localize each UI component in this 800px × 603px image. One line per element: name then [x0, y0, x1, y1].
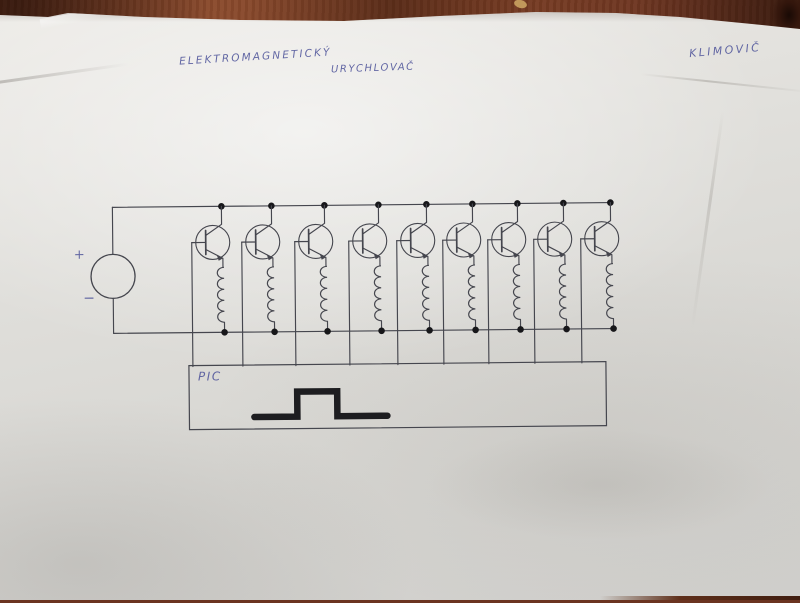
emitter-junction-dot: [610, 325, 617, 332]
coil-inductor: [374, 266, 381, 321]
emitter-junction-dot: [271, 328, 278, 335]
coil-inductor: [513, 264, 520, 319]
coil-inductor: [267, 267, 274, 322]
collector-wire: [456, 204, 472, 233]
collector-wire: [362, 205, 378, 234]
coil-inductor: [606, 264, 613, 319]
coil-inductor: [217, 267, 224, 322]
emitter-junction-dot: [426, 327, 433, 334]
emitter-junction-dot: [221, 329, 228, 336]
base-control-wire: [192, 243, 193, 367]
coil-inductor: [468, 265, 475, 320]
circuit-diagram: + − PIC: [0, 0, 800, 603]
collector-wire: [501, 203, 517, 232]
circuit-schematic-svg: [0, 0, 800, 603]
collector-wire: [308, 205, 324, 234]
table-edge-sliver: [600, 596, 800, 600]
collector-wire: [594, 203, 610, 232]
emitter-junction-dot: [563, 326, 570, 333]
pic-controller-box: [189, 362, 607, 430]
base-control-wire: [534, 239, 535, 363]
collector-wire: [205, 206, 221, 235]
bottom-supply-rail: [114, 329, 614, 334]
source-plus-label: +: [74, 248, 85, 263]
base-control-wire: [581, 239, 582, 363]
top-supply-rail: [112, 203, 610, 208]
voltage-source: [91, 254, 135, 298]
emitter-junction-dot: [378, 327, 385, 334]
collector-wire: [547, 203, 563, 232]
base-control-wire: [397, 241, 398, 365]
emitter-junction-dot: [324, 328, 331, 335]
base-control-wire: [242, 242, 243, 366]
coil-inductor: [422, 265, 429, 320]
emitter-junction-dot: [517, 326, 524, 333]
pulse-waveform: [254, 391, 387, 417]
pic-controller-label: PIC: [198, 369, 222, 383]
emitter-junction-dot: [472, 327, 479, 334]
base-control-wire: [443, 240, 444, 364]
coil-inductor: [559, 264, 566, 319]
base-control-wire: [295, 242, 296, 366]
collector-wire: [255, 206, 271, 235]
coil-inductor: [320, 266, 327, 321]
source-minus-label: −: [83, 291, 95, 307]
collector-wire: [410, 204, 426, 233]
base-control-wire: [349, 241, 350, 365]
base-control-wire: [488, 240, 489, 364]
